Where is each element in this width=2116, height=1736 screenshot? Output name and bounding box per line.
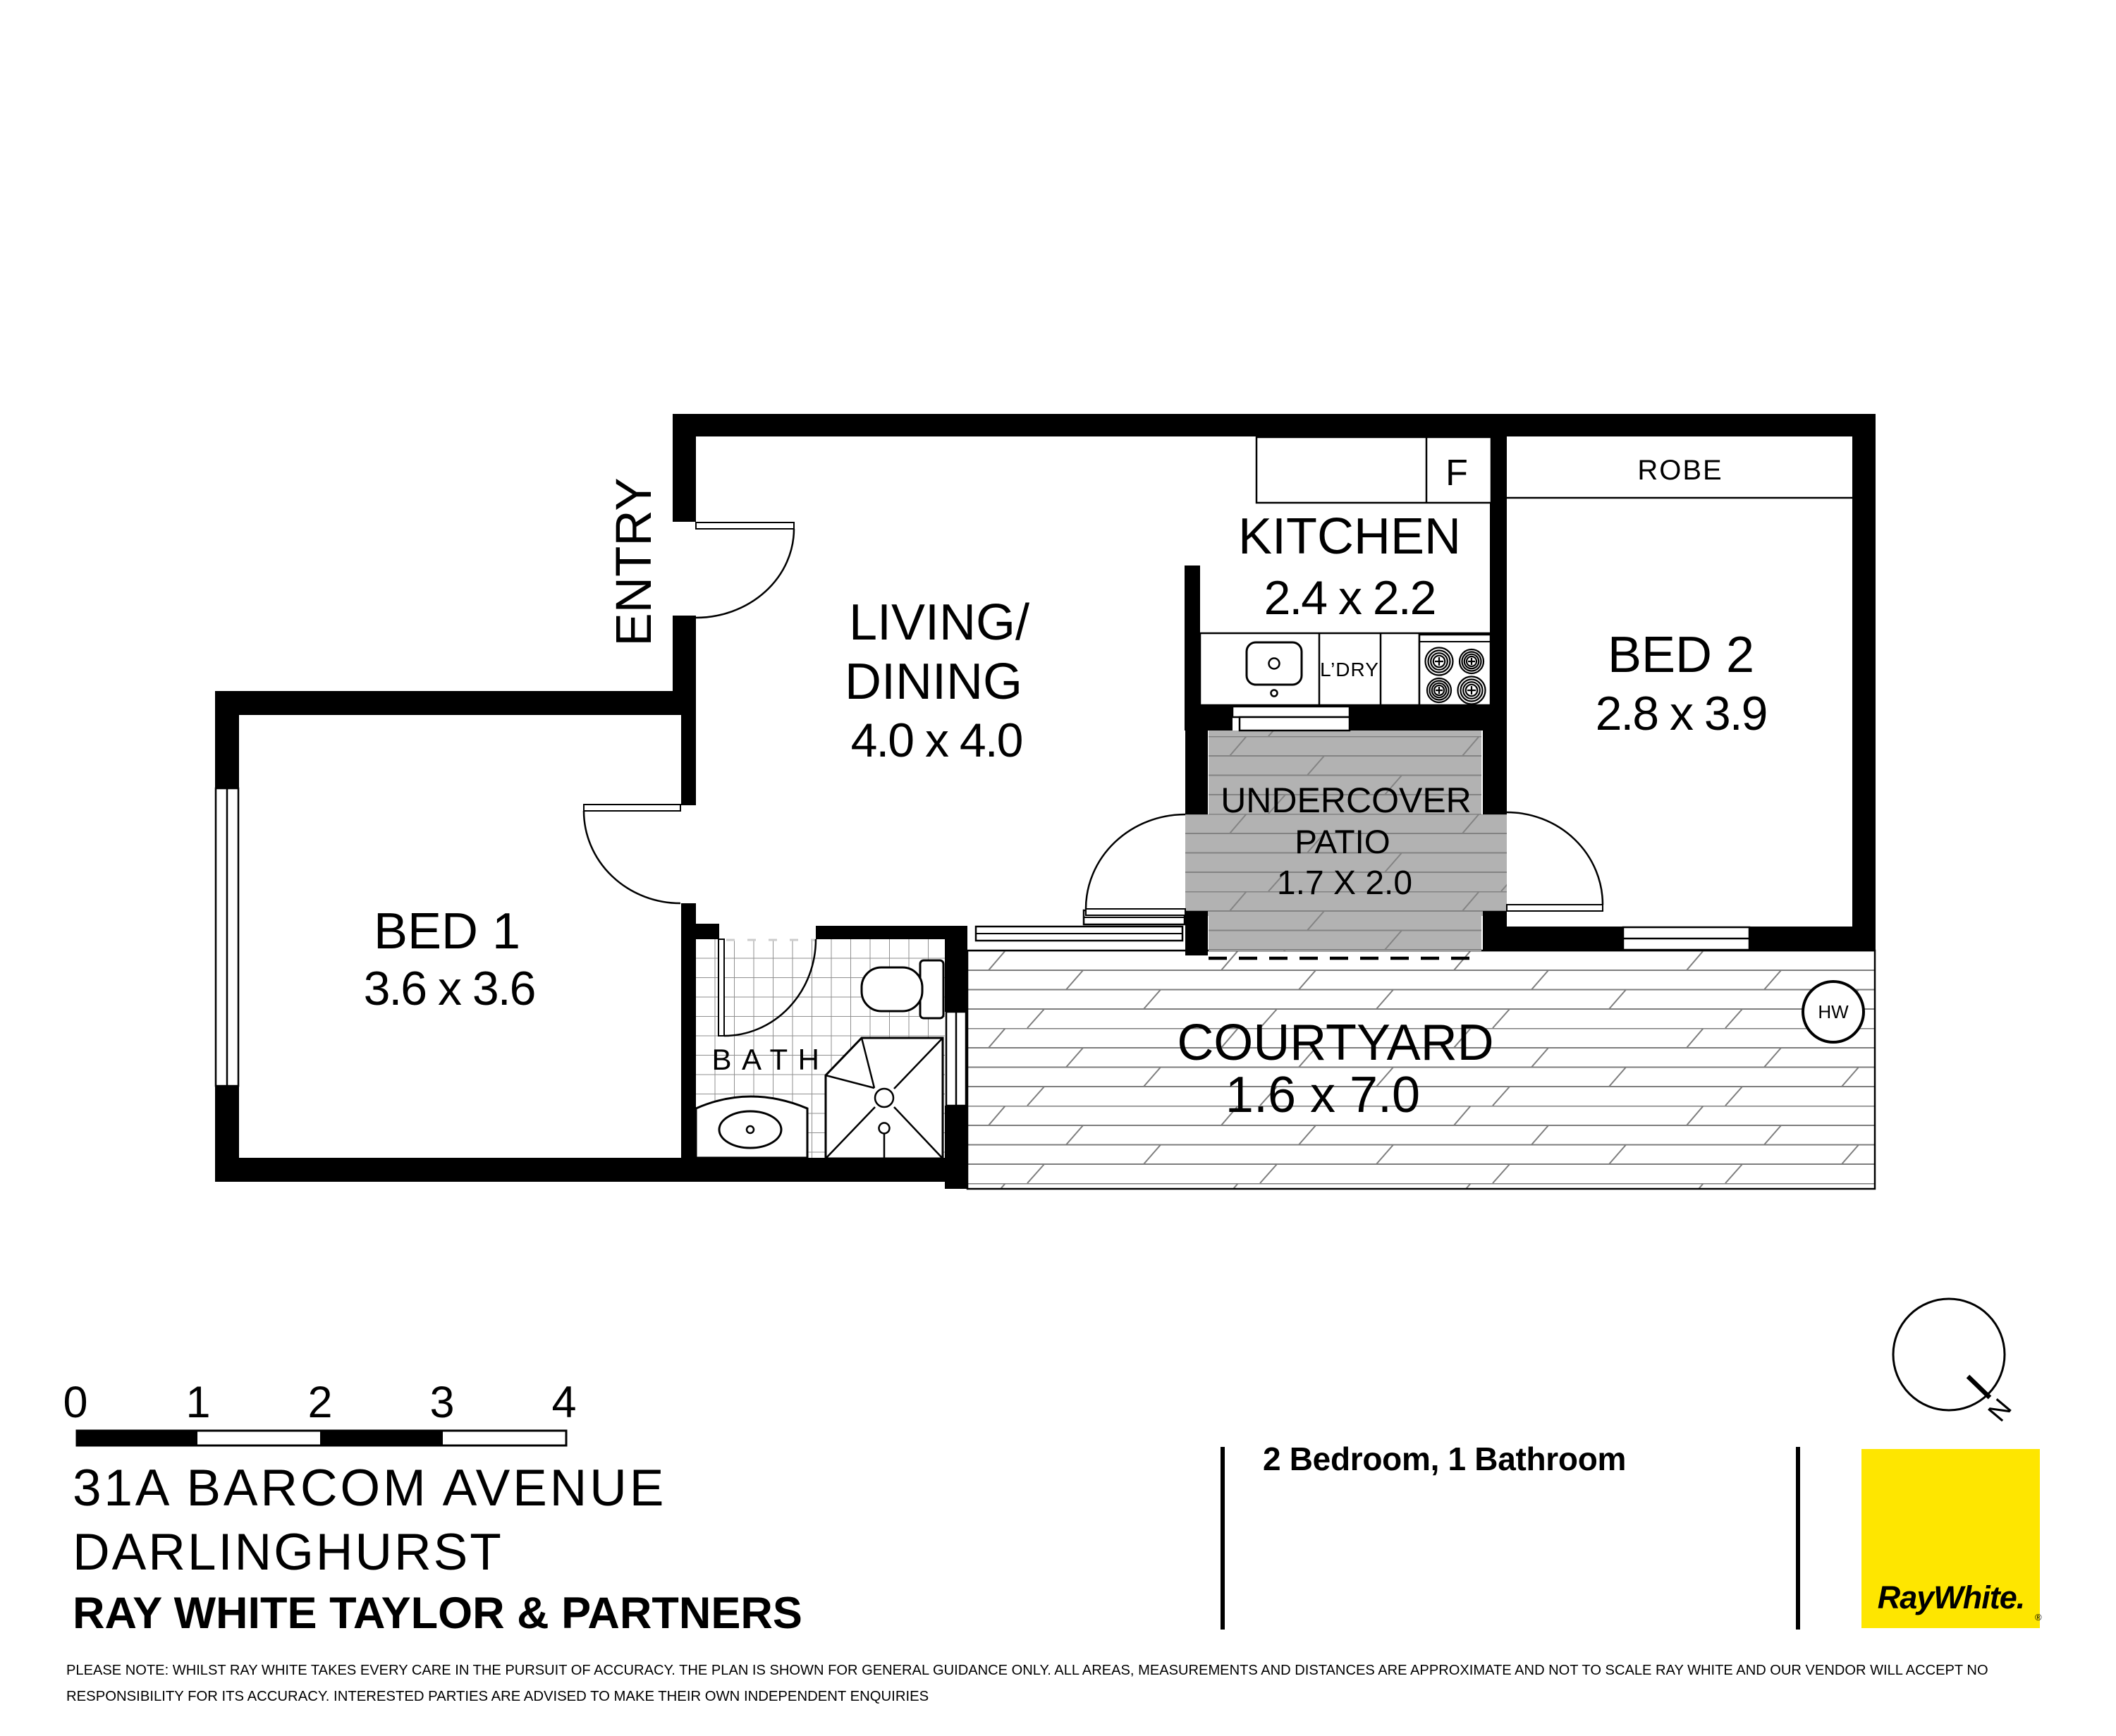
svg-text:2: 2 xyxy=(307,1378,332,1427)
svg-text:UNDERCOVER: UNDERCOVER xyxy=(1221,781,1472,820)
svg-text:HW: HW xyxy=(1818,1001,1849,1022)
svg-text:PLEASE NOTE: WHILST RAY WHITE: PLEASE NOTE: WHILST RAY WHITE TAKES EVER… xyxy=(66,1663,1988,1678)
svg-text:4.0 x 4.0: 4.0 x 4.0 xyxy=(851,714,1022,767)
svg-text:COURTYARD: COURTYARD xyxy=(1177,1015,1493,1071)
svg-text:3.6 x 3.6: 3.6 x 3.6 xyxy=(364,962,535,1015)
svg-text:BED 2: BED 2 xyxy=(1608,627,1754,683)
svg-text:DARLINGHURST: DARLINGHURST xyxy=(73,1524,503,1581)
svg-text:RAY WHITE TAYLOR & PARTNERS: RAY WHITE TAYLOR & PARTNERS xyxy=(73,1589,802,1638)
svg-text:0: 0 xyxy=(63,1378,87,1427)
svg-text:RayWhite.: RayWhite. xyxy=(1878,1579,2025,1615)
svg-text:BATH: BATH xyxy=(712,1043,830,1076)
svg-text:1.6 x 7.0: 1.6 x 7.0 xyxy=(1225,1067,1420,1123)
svg-text:1.7 X 2.0: 1.7 X 2.0 xyxy=(1277,864,1412,902)
svg-text:BED 1: BED 1 xyxy=(374,903,520,960)
svg-text:ROBE: ROBE xyxy=(1637,455,1723,486)
svg-text:4: 4 xyxy=(551,1378,576,1427)
svg-text:RESPONSIBILITY FOR ITS ACCURAC: RESPONSIBILITY FOR ITS ACCURACY. INTERES… xyxy=(66,1689,929,1704)
svg-text:3: 3 xyxy=(429,1378,454,1427)
svg-text:2.4 x 2.2: 2.4 x 2.2 xyxy=(1264,571,1436,625)
svg-text:DINING: DINING xyxy=(845,654,1022,710)
svg-text:L’DRY: L’DRY xyxy=(1320,659,1379,680)
svg-text:®: ® xyxy=(2035,1612,2042,1622)
svg-text:KITCHEN: KITCHEN xyxy=(1238,508,1461,565)
svg-text:ENTRY: ENTRY xyxy=(606,477,662,646)
svg-text:31A BARCOM AVENUE: 31A BARCOM AVENUE xyxy=(73,1460,666,1517)
svg-text:2.8 x 3.9: 2.8 x 3.9 xyxy=(1596,687,1767,740)
svg-text:PATIO: PATIO xyxy=(1295,824,1390,861)
svg-text:F: F xyxy=(1445,453,1468,494)
svg-text:LIVING/: LIVING/ xyxy=(849,594,1029,651)
svg-text:1: 1 xyxy=(185,1378,210,1427)
svg-text:2 Bedroom, 1 Bathroom: 2 Bedroom, 1 Bathroom xyxy=(1263,1441,1626,1477)
